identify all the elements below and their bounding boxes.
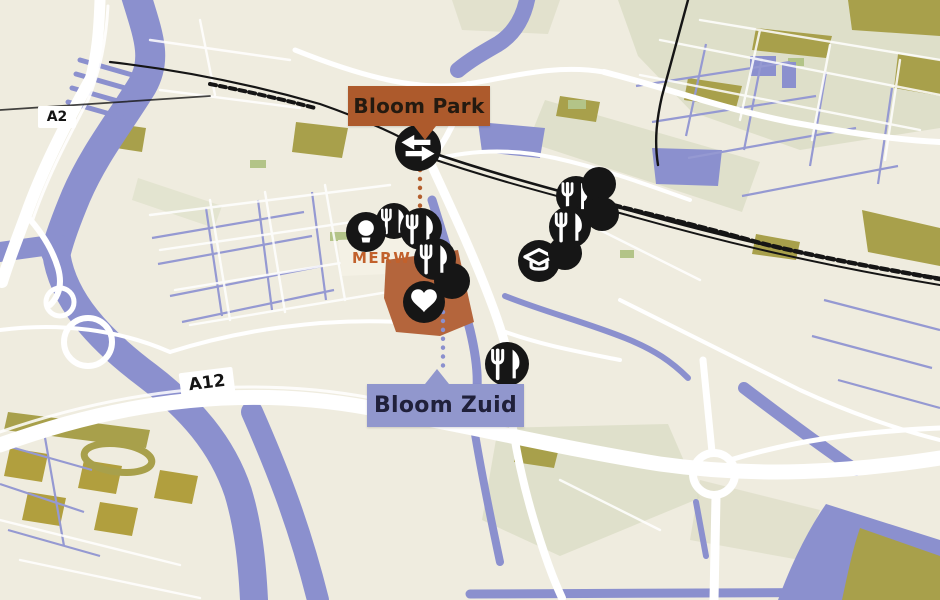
poi-marker[interactable]: [346, 212, 386, 252]
marker-circle: [549, 206, 591, 248]
poi-marker[interactable]: [582, 167, 616, 201]
marker-circle: [414, 238, 456, 280]
district-label: MERW: [352, 249, 411, 267]
map-view: MERW A2 A12 Bloom Park Bloom Zuid: [0, 0, 940, 600]
marker-circle: [582, 167, 616, 201]
marker-circle: [485, 342, 529, 386]
poi-marker[interactable]: [549, 206, 591, 248]
poi-marker[interactable]: [414, 238, 456, 280]
poi-marker[interactable]: [485, 342, 529, 386]
bloom-zuid-label[interactable]: Bloom Zuid: [367, 384, 524, 427]
bloom-zuid-label-text: Bloom Zuid: [374, 393, 517, 418]
poi-marker[interactable]: [403, 281, 445, 323]
bloom-park-label-text: Bloom Park: [353, 94, 484, 118]
road-badge-a2: A2: [38, 106, 76, 128]
bloom-park-label[interactable]: Bloom Park: [348, 86, 490, 126]
